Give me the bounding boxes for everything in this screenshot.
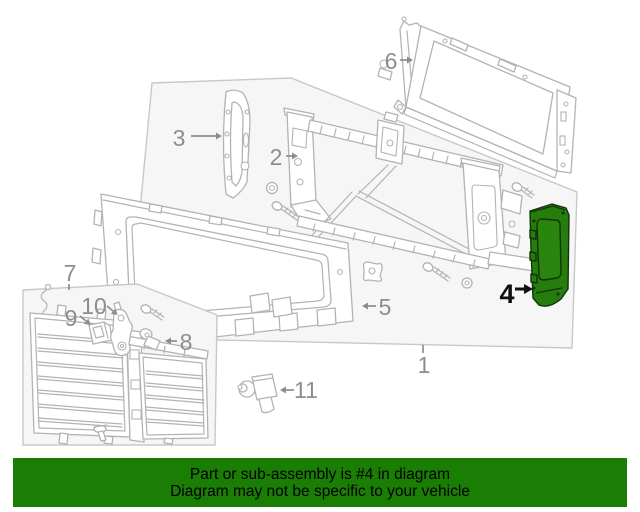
callout-10-label[interactable]: 10: [81, 293, 107, 319]
fastener-nut-1: [267, 183, 278, 194]
notice-banner-line1: Part or sub-assembly is #4 in diagram: [190, 466, 450, 483]
callout-9-label[interactable]: 9: [65, 305, 78, 331]
callout-5-label[interactable]: 5: [379, 294, 392, 320]
parts-diagram: 1 2 3 4 5 6 7 8 9: [0, 0, 640, 512]
callout-11-label[interactable]: 11: [294, 377, 318, 403]
part-3-side-bracket: [224, 90, 251, 198]
callout-3-label[interactable]: 3: [173, 125, 186, 151]
callout-2-label[interactable]: 2: [270, 144, 283, 170]
callout-8-label[interactable]: 8: [180, 329, 193, 355]
callout-7[interactable]: 7: [64, 260, 77, 290]
callout-4-label[interactable]: 4: [499, 279, 514, 309]
fastener-nut-2: [462, 278, 472, 288]
notice-banner-line2: Diagram may not be specific to your vehi…: [170, 483, 470, 500]
part-4-highlighted-bracket[interactable]: [530, 204, 569, 306]
parts-diagram-page: 1 2 3 4 5 6 7 8 9: [0, 0, 640, 512]
callout-7-label[interactable]: 7: [64, 260, 77, 286]
notice-banner: Part or sub-assembly is #4 in diagram Di…: [13, 458, 627, 507]
fastener-wing-clip: [364, 262, 383, 281]
callout-6-label[interactable]: 6: [385, 48, 398, 74]
part-9-bracket: [89, 322, 112, 344]
callout-1-label[interactable]: 1: [418, 352, 431, 378]
